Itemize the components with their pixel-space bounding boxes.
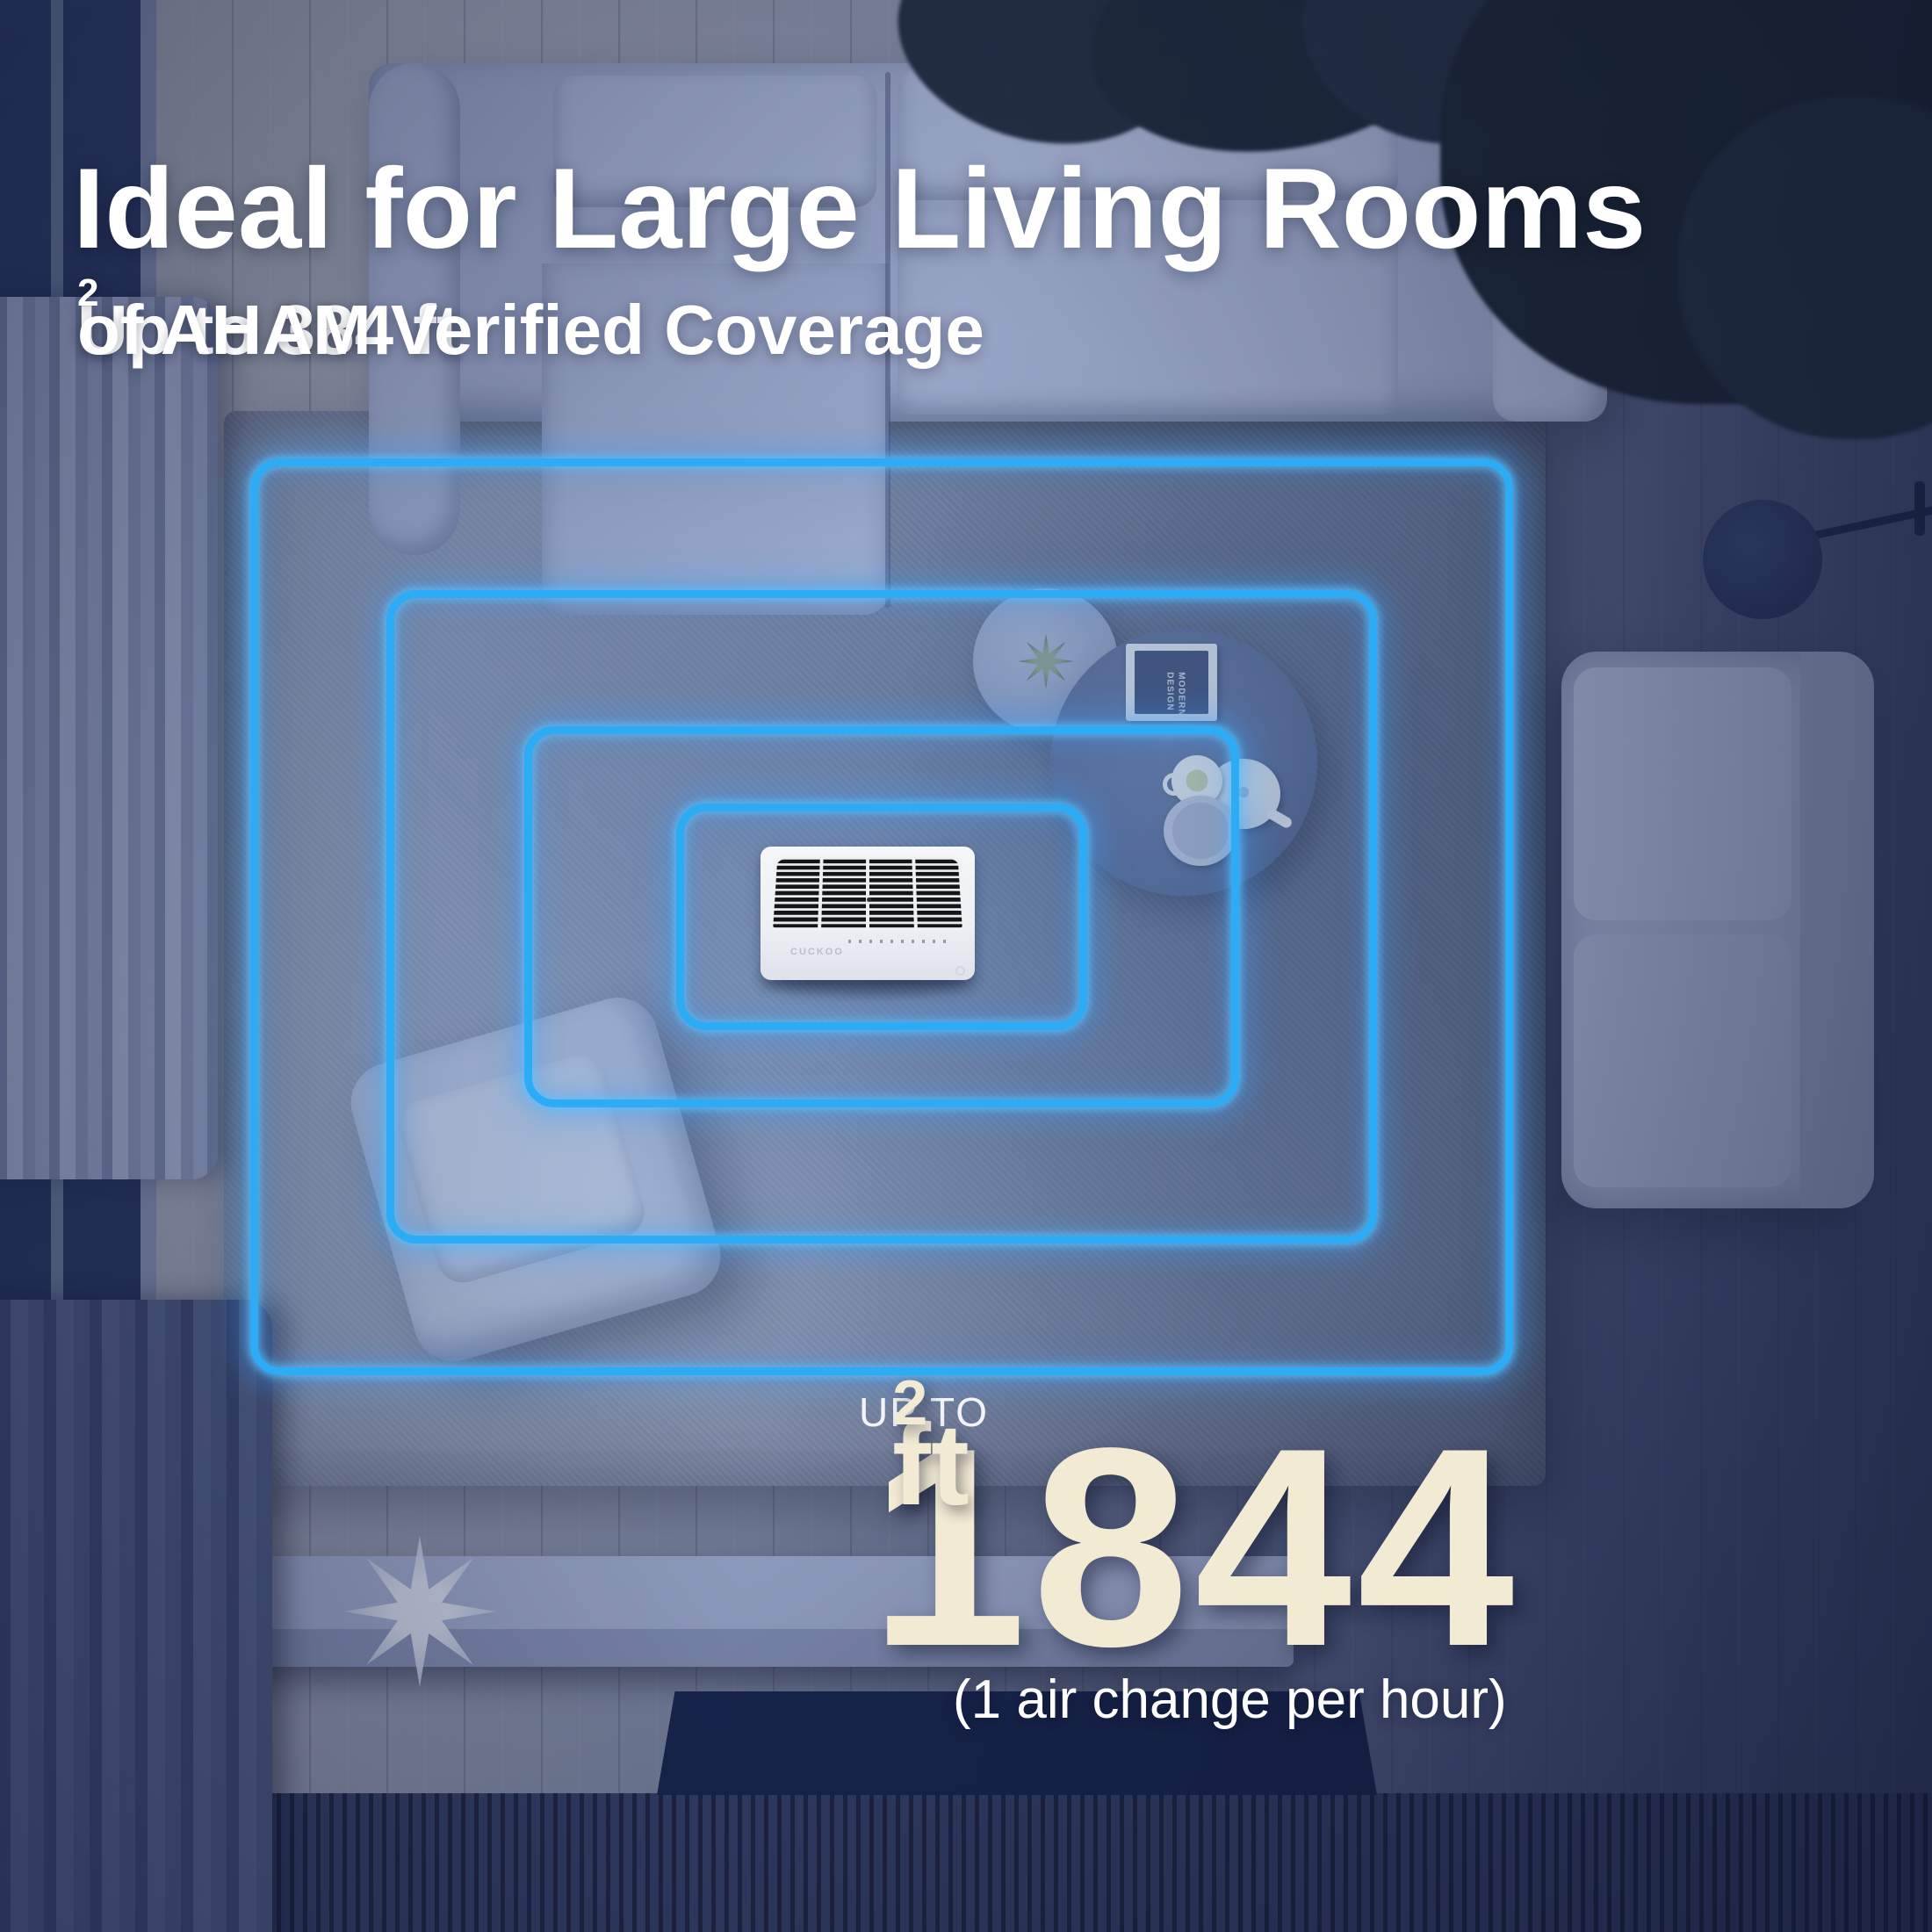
floor-vent-band [0, 1793, 1932, 1932]
air-purifier-grille [769, 856, 966, 931]
loveseat-backrest [1800, 652, 1874, 1208]
subtitle-text: of AHAM Verified Coverage [77, 295, 984, 365]
wall-lamp-shade [1703, 500, 1822, 619]
wall-lamp-mount [1914, 481, 1925, 536]
curtain [0, 1300, 272, 1932]
loveseat-cushion [1574, 934, 1791, 1187]
control-indicator-dots [848, 940, 952, 943]
air-purifier-body: CUCKOO [761, 847, 975, 980]
air-change-note: (1 air change per hour) [953, 1669, 1507, 1731]
curtain [0, 297, 218, 1179]
page-title: Ideal for Large Living Rooms [73, 151, 1646, 265]
brand-logo: CUCKOO [790, 947, 844, 957]
power-indicator-dot [867, 898, 871, 902]
unit-superscript: 2 [892, 1372, 927, 1436]
product-coverage-infographic: MODERN DESIGN CUCKOO [0, 0, 1932, 1932]
control-button [955, 966, 965, 976]
air-purifier: CUCKOO [761, 847, 975, 980]
loveseat-cushion [1574, 667, 1791, 920]
loveseat-right [1561, 652, 1874, 1208]
